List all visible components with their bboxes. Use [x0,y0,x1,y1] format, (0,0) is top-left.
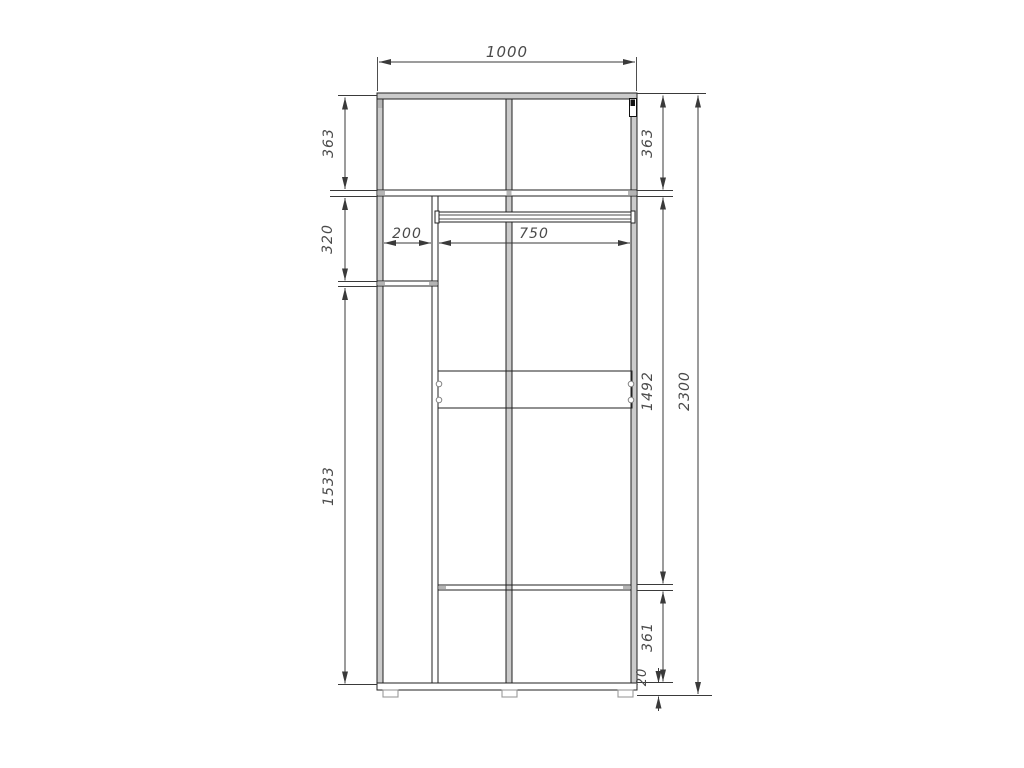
dim-label-plinth-height: 20 [635,668,650,687]
drawer-module [436,371,634,408]
dim-label-bottom-section-right: 361 [640,622,656,652]
bottom-panel [377,683,637,690]
dim-label-left-column-height: 1533 [321,466,337,506]
dim-label-overall-width: 1000 [486,43,528,61]
dim-label-right-column-width: 750 [519,226,549,242]
dim-label-top-section-left: 363 [321,128,337,158]
shelf-connector [378,191,385,195]
hinge-latch-detail [630,99,637,117]
cabinet-structure [377,93,637,697]
dim-label-left-column-width: 200 [392,226,422,242]
rod-bracket-left [435,211,439,223]
cam-connector [436,397,442,403]
dim-label-upper-left-section: 320 [320,224,336,254]
left-side-panel [377,99,383,683]
wardrobe-technical-drawing: 1000 200 750 363 320 1533 363 1492 361 2… [0,0,1024,768]
foot-right [618,690,633,697]
shelf-connector [628,191,636,195]
wall-connector [378,100,383,108]
top-panel [377,93,637,99]
inner-divider-panel [432,196,438,683]
drawing-canvas: 1000 200 750 363 320 1533 363 1492 361 2… [0,0,1024,768]
shelf-connector [507,191,512,195]
shelf-connector [378,282,385,285]
hanging-rod [435,211,635,223]
cam-connector [436,381,442,387]
dim-label-top-section-right: 363 [640,128,656,158]
rod-bracket-right [631,211,635,223]
foot-center [502,690,517,697]
foot-left [383,690,398,697]
lower-shelf [438,585,631,590]
left-column-shelf [377,281,438,286]
dim-label-overall-height: 2300 [677,371,693,411]
cam-connector [628,381,634,387]
cam-connector [628,397,634,403]
shelf-connector [429,282,437,285]
dim-label-middle-section-right: 1492 [640,371,656,411]
center-divider-panel [506,99,512,683]
